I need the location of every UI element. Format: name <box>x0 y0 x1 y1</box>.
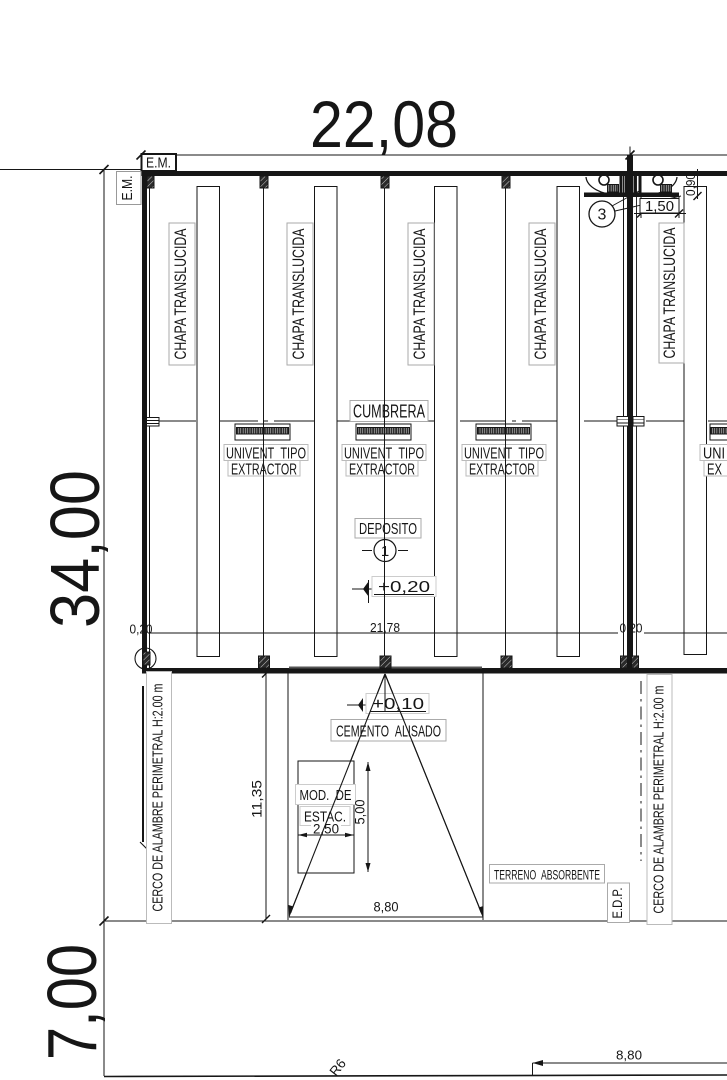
svg-text:5,00: 5,00 <box>353 800 368 825</box>
svg-text:0,20: 0,20 <box>130 622 153 637</box>
svg-text:E.M.: E.M. <box>146 156 171 172</box>
svg-text:CUMBRERA: CUMBRERA <box>353 402 425 422</box>
svg-text:CEMENTO ALISADO: CEMENTO ALISADO <box>336 724 441 741</box>
svg-text:11,35: 11,35 <box>250 780 265 818</box>
svg-text:E.M.: E.M. <box>120 176 136 201</box>
svg-text:UNIVENT TIPO: UNIVENT TIPO <box>464 446 544 463</box>
svg-text:CHAPA TRANSLUCIDA: CHAPA TRANSLUCIDA <box>411 229 429 360</box>
svg-text:CHAPA TRANSLUCIDA: CHAPA TRANSLUCIDA <box>661 228 679 359</box>
svg-text:+0,10: +0,10 <box>372 696 424 713</box>
svg-text:EXTRACTOR: EXTRACTOR <box>349 462 415 479</box>
svg-text:8,80: 8,80 <box>616 1048 642 1063</box>
svg-text:MOD. DE: MOD. DE <box>300 788 352 804</box>
svg-text:E.D.P.: E.D.P. <box>610 888 625 919</box>
svg-text:3: 3 <box>598 207 607 224</box>
svg-text:+0,20: +0,20 <box>378 579 430 596</box>
svg-text:UNI: UNI <box>703 446 725 463</box>
svg-text:CERCO DE ALAMBRE PERIMETRAL H:: CERCO DE ALAMBRE PERIMETRAL H:2.00 m <box>151 684 167 912</box>
svg-text:UNIVENT TIPO: UNIVENT TIPO <box>226 446 306 463</box>
svg-text:CHAPA TRANSLUCIDA: CHAPA TRANSLUCIDA <box>532 229 550 360</box>
svg-text:1,50: 1,50 <box>645 199 674 215</box>
svg-text:8,80: 8,80 <box>374 900 399 915</box>
svg-text:34,00: 34,00 <box>36 470 114 628</box>
svg-text:7,00: 7,00 <box>33 944 111 1060</box>
svg-text:EX: EX <box>707 462 722 479</box>
svg-text:EXTRACTOR: EXTRACTOR <box>469 462 535 479</box>
svg-text:CERCO DE ALAMBRE PERIMETRAL H:: CERCO DE ALAMBRE PERIMETRAL H:2.00 m <box>652 686 668 914</box>
svg-text:CHAPA TRANSLUCIDA: CHAPA TRANSLUCIDA <box>290 229 308 360</box>
svg-text:CHAPA TRANSLUCIDA: CHAPA TRANSLUCIDA <box>172 229 190 360</box>
svg-text:22,08: 22,08 <box>310 87 458 161</box>
svg-text:DEPOSITO: DEPOSITO <box>359 521 417 538</box>
svg-text:TERRENO ABSORBENTE: TERRENO ABSORBENTE <box>494 868 600 883</box>
svg-text:0,90: 0,90 <box>684 173 698 196</box>
